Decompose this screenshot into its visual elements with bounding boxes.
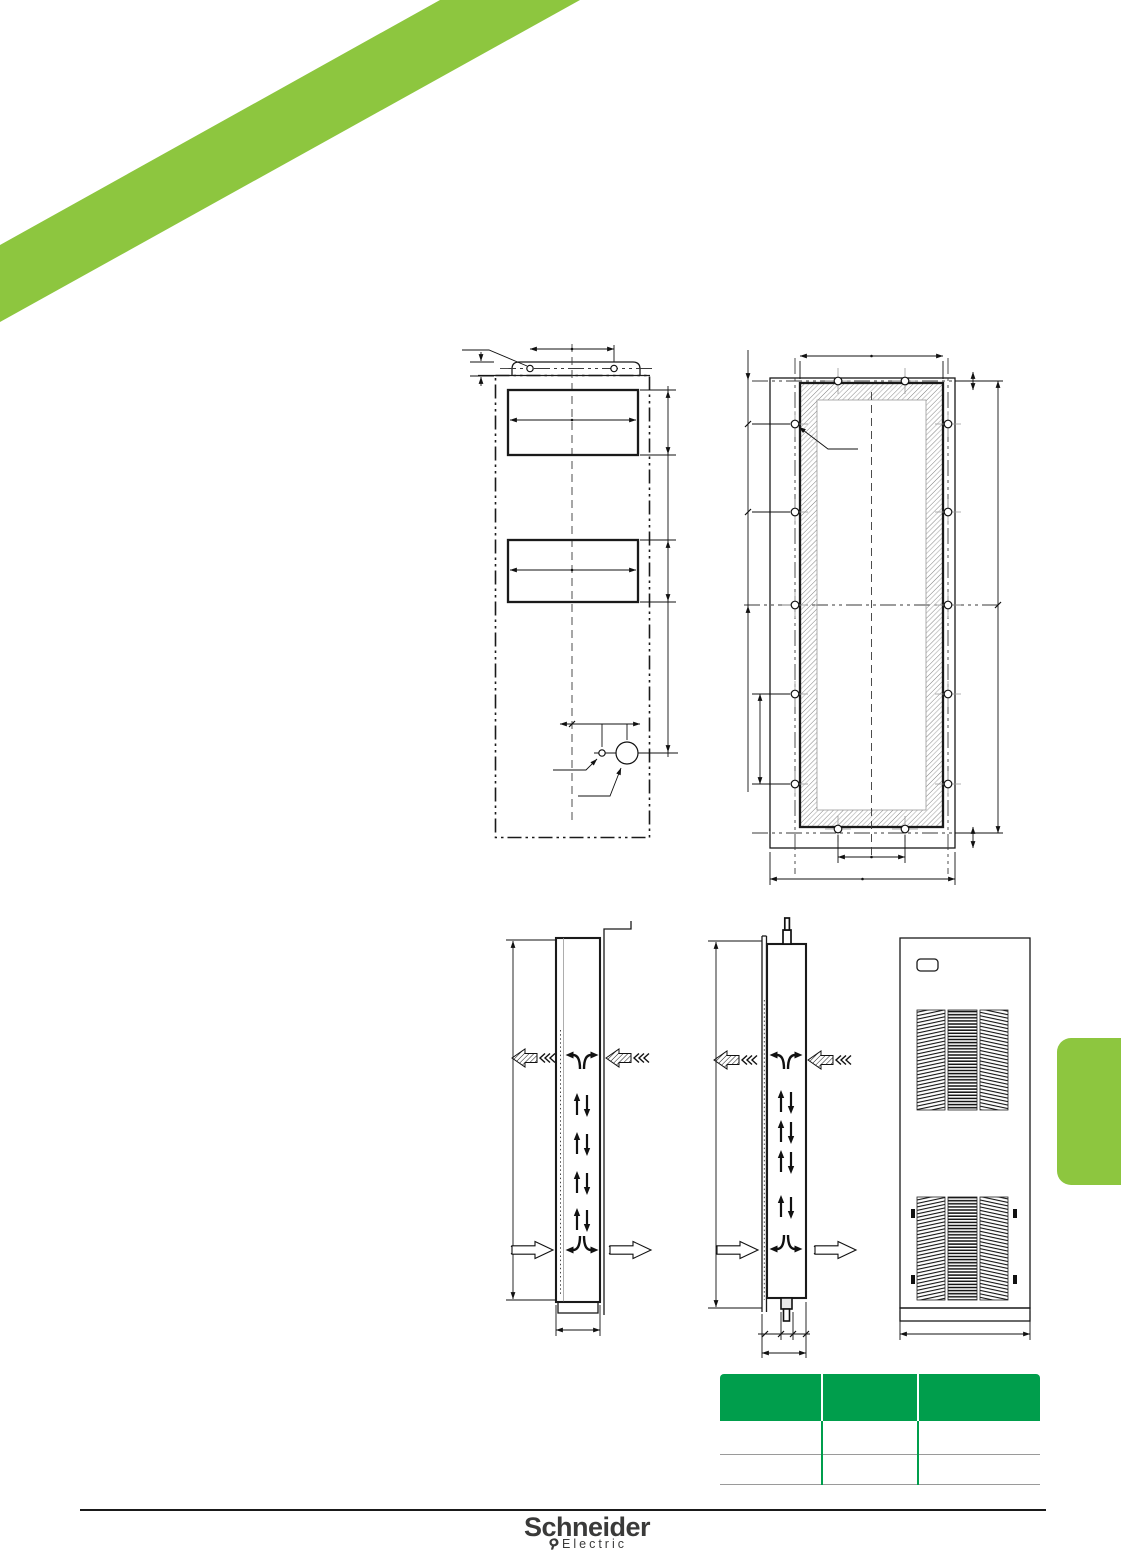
hot-air-out-arrow-icon [512, 1049, 555, 1067]
nameplate [917, 959, 938, 971]
hot-air-in-arrow-icon [808, 1051, 851, 1069]
green-side-tab [1057, 1038, 1121, 1185]
table-row [720, 1421, 1040, 1455]
schneider-symbol-icon [547, 1537, 560, 1551]
unit-front-view-drawing [900, 938, 1030, 1340]
cool-air-arrow-icon [716, 1242, 758, 1259]
table-cell [720, 1455, 821, 1486]
technical-drawings [0, 0, 1121, 1552]
front-panel-cutout-drawing [744, 350, 1003, 885]
catalog-page: Schneider Electric [0, 0, 1121, 1552]
table-cell [823, 1455, 917, 1486]
table-cell [823, 1421, 917, 1455]
side-view-airflow-drawing [506, 921, 651, 1336]
hot-air-in-arrow-icon [606, 1049, 649, 1067]
hot-air-out-arrow-icon [714, 1051, 757, 1069]
cool-air-arrow-icon [609, 1242, 651, 1259]
rear-panel-cutout-drawing [462, 344, 678, 838]
schneider-electric-logo: Schneider Electric [506, 1514, 668, 1551]
table-row [720, 1455, 1040, 1486]
header-cell [919, 1374, 1040, 1421]
green-diagonal-banner [0, 0, 580, 322]
header-cell [823, 1374, 917, 1421]
cool-air-arrow-icon [511, 1242, 553, 1259]
side-view-mounted-drawing [708, 918, 856, 1358]
table-cell [919, 1421, 1040, 1455]
logo-sub-text: Electric [562, 1537, 627, 1551]
spec-table [720, 1374, 1040, 1485]
table-cell [720, 1421, 821, 1455]
footer-rule [80, 1509, 1046, 1511]
header-cell [720, 1374, 821, 1421]
spec-table-header [720, 1374, 1040, 1421]
table-cell [919, 1455, 1040, 1486]
cool-air-arrow-icon [814, 1242, 856, 1259]
